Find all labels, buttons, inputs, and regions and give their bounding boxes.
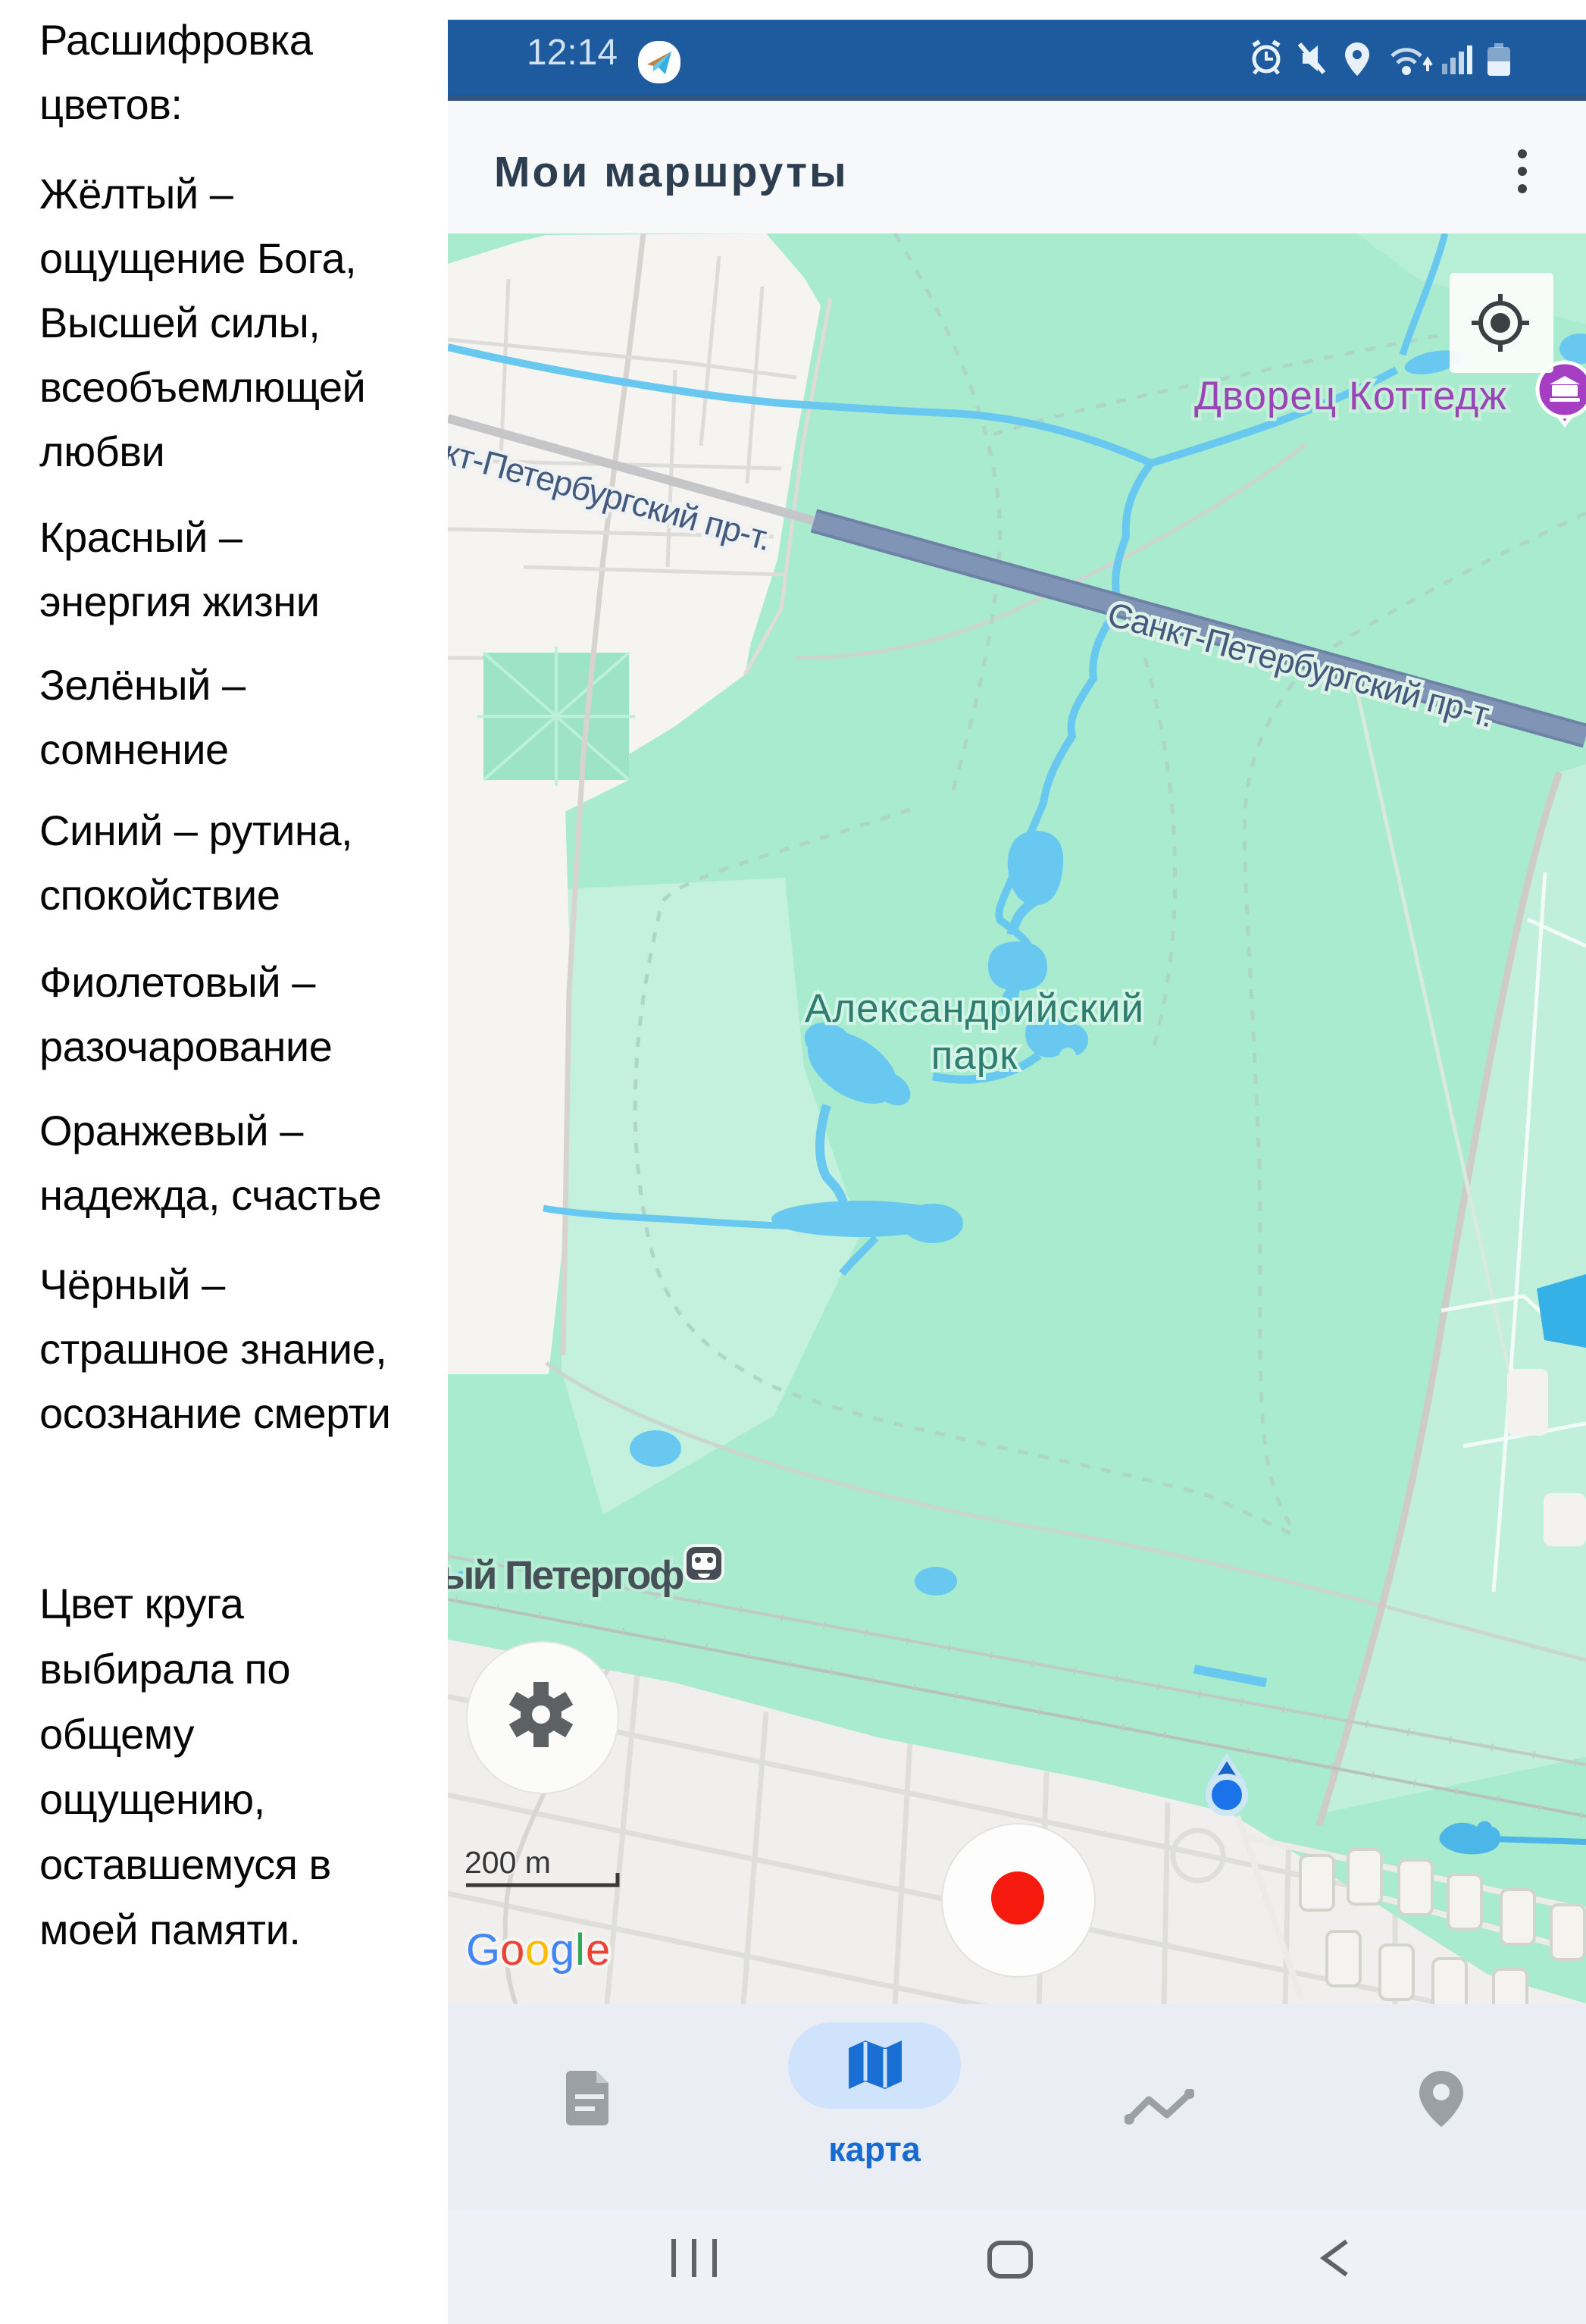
svg-text:o: o: [500, 1925, 524, 1975]
svg-text:200 m: 200 m: [465, 1845, 551, 1880]
svg-text:Дворец Коттедж: Дворец Коттедж: [1194, 374, 1507, 418]
svg-text:l: l: [575, 1925, 584, 1975]
svg-text:парк: парк: [931, 1033, 1018, 1078]
svg-text:g: g: [550, 1925, 574, 1975]
svg-text:o: o: [525, 1925, 549, 1975]
svg-text:e: e: [586, 1925, 609, 1975]
svg-text:G: G: [466, 1925, 499, 1975]
svg-text:Александрийский: Александрийский: [805, 986, 1144, 1031]
svg-text:ый Петергоф: ый Петергоф: [448, 1553, 684, 1598]
